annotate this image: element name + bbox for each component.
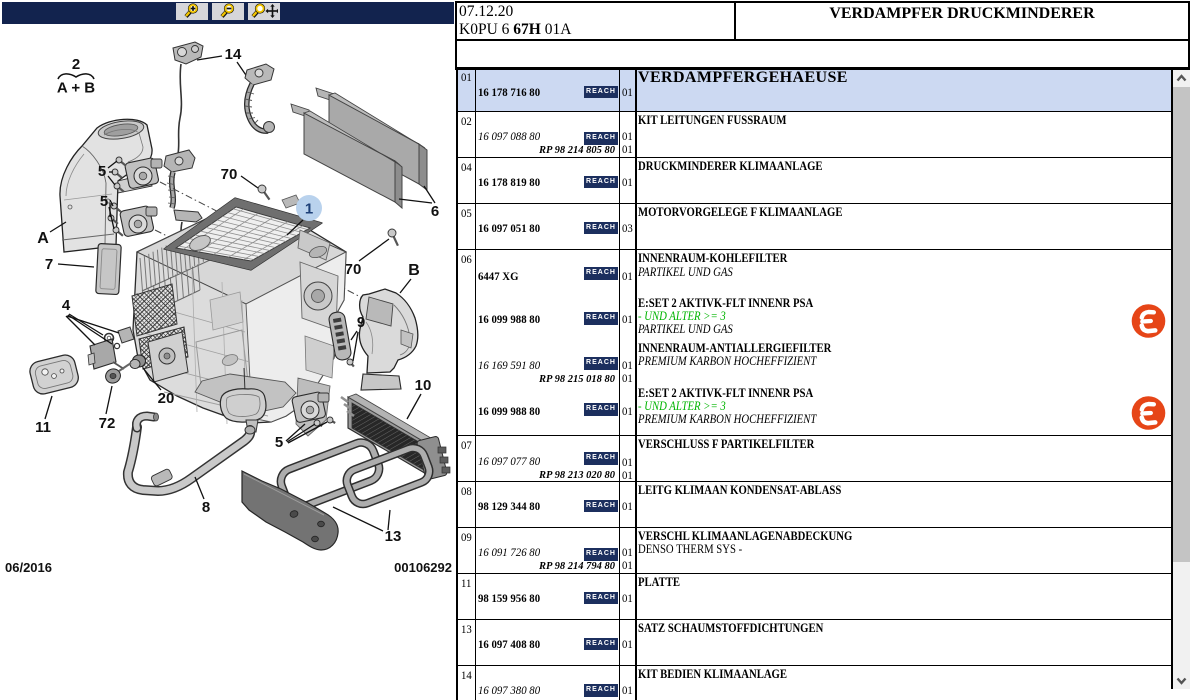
svg-text:7: 7 [45,256,53,273]
svg-text:5: 5 [98,163,106,180]
svg-text:13: 13 [385,528,402,545]
svg-text:11: 11 [35,419,51,436]
svg-text:9: 9 [357,314,365,331]
svg-text:1: 1 [305,201,313,218]
svg-text:A + B: A + B [57,80,95,97]
svg-text:8: 8 [202,499,210,516]
svg-text:4: 4 [62,297,71,314]
svg-text:70: 70 [345,261,362,278]
svg-text:20: 20 [158,390,175,407]
svg-text:14: 14 [225,46,242,63]
svg-text:6: 6 [431,203,439,220]
svg-text:A: A [37,230,49,247]
svg-text:2: 2 [72,56,80,73]
svg-text:10: 10 [415,377,432,394]
svg-text:00106292: 00106292 [394,560,452,575]
svg-text:70: 70 [221,166,238,183]
svg-text:5: 5 [100,193,108,210]
svg-text:72: 72 [99,415,116,432]
svg-text:B: B [408,262,420,279]
svg-text:06/2016: 06/2016 [5,560,52,575]
svg-text:5: 5 [275,434,283,451]
